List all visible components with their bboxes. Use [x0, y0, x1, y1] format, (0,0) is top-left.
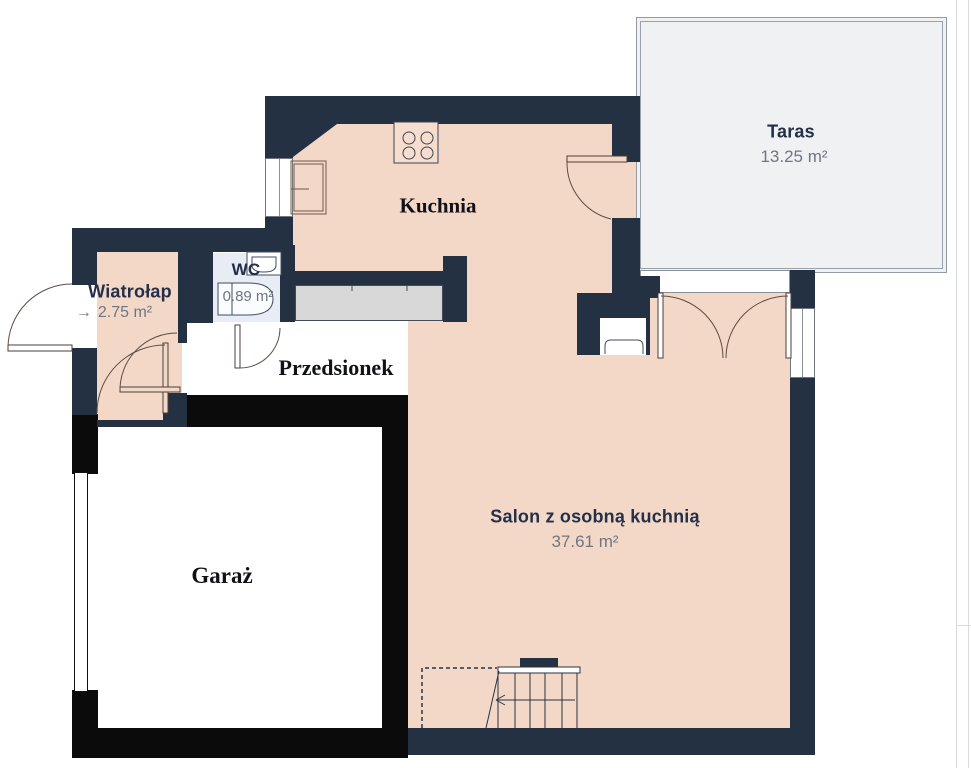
room-area-taras: 13.25 m²	[760, 147, 827, 167]
salon-area: 37.61 m²	[551, 532, 618, 551]
terrace-double-door-icon	[658, 293, 791, 358]
room-label-taras: Taras	[767, 122, 815, 143]
taras-name: Taras	[767, 122, 815, 142]
room-area-wc: 0.89 m²	[223, 288, 274, 306]
salon-name: Salon z osobną kuchnią	[490, 507, 699, 527]
wc-door-icon	[235, 325, 280, 368]
stairs-icon	[422, 667, 580, 728]
room-area-salon: 37.61 m²	[551, 532, 618, 552]
room-label-przedsionek: Przedsionek	[279, 355, 394, 381]
room-label-salon: Salon z osobną kuchnią	[490, 507, 699, 528]
room-label-wiatrolap: Wiatrołap	[88, 282, 172, 303]
stove-icon	[394, 122, 438, 163]
entry-door-icon	[8, 284, 72, 351]
room-area-wiatrolap: →2.75 m²	[76, 304, 152, 322]
wiatrolap-door-icons	[97, 333, 180, 413]
kitchen-terrace-door-icon	[567, 156, 627, 219]
wiatrolap-area: 2.75 m²	[98, 304, 152, 321]
floor-plan: Taras 13.25 m² Kuchnia WC 0.89 m² Wiatro…	[0, 0, 971, 768]
entry-arrow-icon: →	[76, 304, 92, 321]
taras-area: 13.25 m²	[760, 147, 827, 166]
room-label-kuchnia: Kuchnia	[399, 194, 476, 219]
counter-ticks	[352, 285, 407, 291]
kitchen-cabinet-icon	[291, 161, 326, 214]
room-label-garaz: Garaż	[191, 563, 252, 589]
room-label-wc: WC	[232, 260, 261, 280]
wc-name: WC	[232, 260, 261, 279]
wiatrolap-name: Wiatrołap	[88, 282, 172, 302]
wc-area: 0.89 m²	[223, 288, 274, 305]
fireplace-icon	[605, 340, 643, 354]
symbols-overlay	[0, 0, 971, 768]
